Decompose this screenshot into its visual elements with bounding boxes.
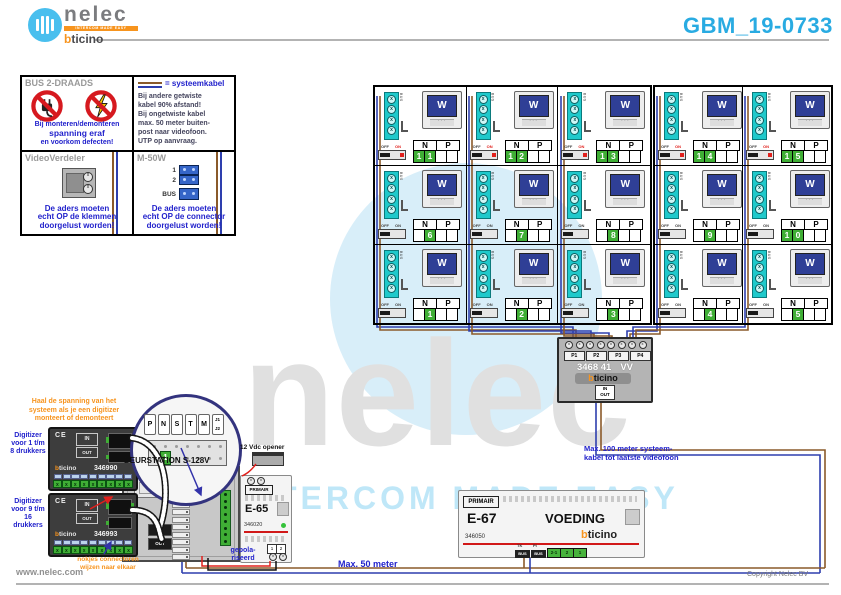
deurstation-label: DEURSTATION S-128V (124, 456, 210, 465)
max-50m-note: Max. 50 meter (338, 559, 398, 569)
nelec-logo-icon (28, 8, 62, 42)
door-opener-label: 12 Vdc opener (240, 444, 284, 451)
header-rule (95, 39, 829, 41)
max-100m-note: Max. 100 meter systeem- kabel tot laatst… (584, 444, 714, 462)
website-url: www.nelec.com (16, 567, 83, 577)
footer-rule (16, 583, 829, 585)
gepolariseerd-note: gepola- riseerd (224, 547, 262, 562)
bticino-rest: ticino (71, 32, 103, 46)
overlay-wiring (0, 0, 841, 595)
digitizer-power-warning: Haal de spanning van het systeem als je … (14, 398, 134, 424)
digitizer1-label: Digitizer voor 1 t/m 8 drukkers (10, 432, 46, 456)
nelec-logo-text: nelec (64, 3, 128, 27)
bticino-logo: bticino (64, 32, 103, 46)
digitizer2-label: Digitizer voor 9 t/m 16 drukkers (10, 498, 46, 530)
document-title: GBM_19-0733 (683, 13, 833, 39)
logo-tagline: INTERCOM MADE EASY (64, 26, 138, 31)
schematic-page: nelec INTERCOM MADE EASY nelec INTERCOM … (0, 0, 841, 595)
copyright: Copyright Nelec BV (747, 571, 808, 578)
